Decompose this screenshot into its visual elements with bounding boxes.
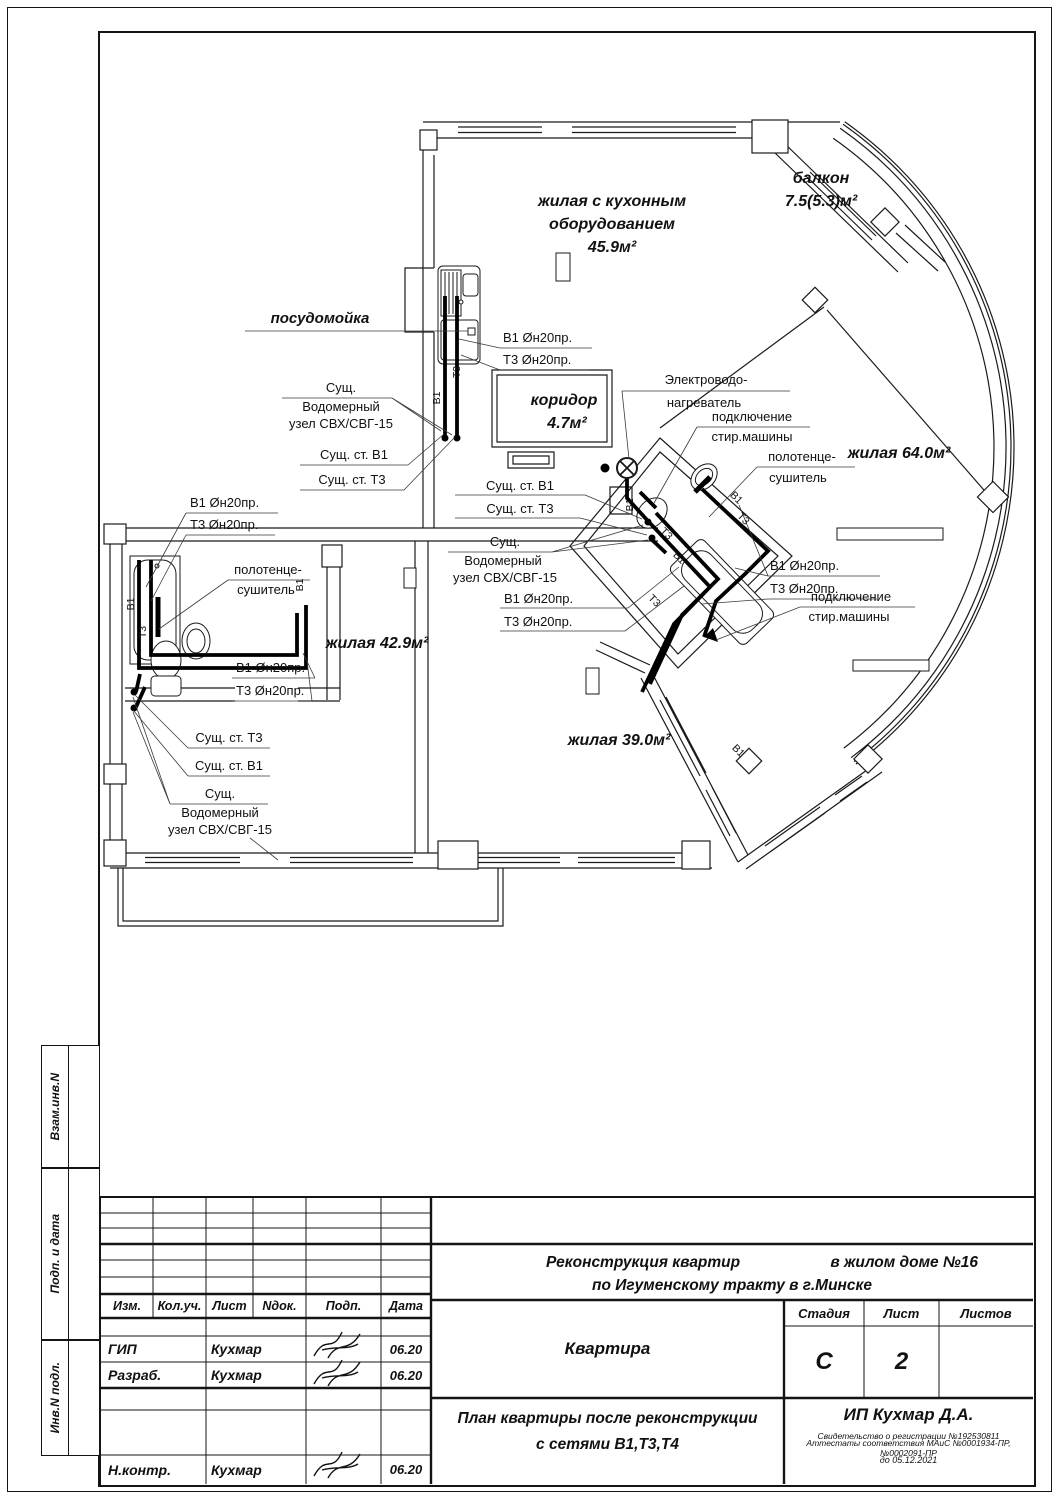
podp-data-label: Подп. и дата	[48, 1214, 62, 1293]
sheets-value	[939, 1326, 1033, 1398]
label-washer-right-1: подключение	[811, 589, 891, 604]
label-exist-riser-t3-top: Сущ. ст. Т3	[318, 472, 385, 487]
tag-t3: Т3	[451, 366, 463, 378]
label-towel-right-1: полотенце-	[768, 449, 836, 464]
sheets-label: Листов	[939, 1300, 1033, 1326]
row-gip-role: ГИП	[108, 1336, 204, 1362]
label-dishwasher: посудомойка	[271, 310, 370, 327]
project-name-left: Реконструкция квартир	[546, 1254, 740, 1272]
room-label-corridor-area: 4.7м²	[546, 415, 587, 432]
room-label-corridor: коридор	[531, 392, 598, 409]
sanitary-fixtures	[130, 266, 776, 696]
drawing-title-1: План квартиры после реконструкции	[431, 1404, 784, 1434]
riser-dots	[131, 435, 656, 712]
tag-b1: В1	[727, 489, 745, 507]
side-cell-inv: Инв.N подл.	[41, 1340, 100, 1456]
side-cell-podp: Подп. и дата	[41, 1168, 100, 1340]
label-exist-riser-b1-bottom: Сущ. ст. В1	[195, 758, 263, 773]
row-gip-name: Кухмар	[211, 1336, 304, 1362]
room-label-kitchen-1: жилая с кухонным	[537, 193, 686, 210]
room-label-64: жилая 64.0м²	[847, 445, 951, 462]
col-data: Дата	[381, 1294, 431, 1318]
drawing-sheet: Взам.инв.N Подп. и дата Инв.N подл.	[0, 0, 1060, 1500]
project-name-row2: по Игуменскому тракту в г.Минске	[431, 1274, 1033, 1298]
vzam-label: Взам.инв.N	[48, 1073, 62, 1141]
label-heater-1: Электроводо-	[665, 372, 748, 387]
row-razrab-name: Кухмар	[211, 1362, 304, 1388]
label-pipe-t3-top: Т3 Øн20пр.	[503, 352, 571, 367]
label-exist-node-mid-2: Водомерный	[464, 553, 542, 568]
label-exist-node-mid-3: узел СВХ/СВГ-15	[453, 570, 557, 585]
tag-t3: Т3	[137, 626, 149, 638]
project-name-right: в жилом доме №16	[830, 1254, 978, 1272]
label-washer-top-1: подключение	[712, 409, 792, 424]
row-nkontr-date: 06.20	[381, 1455, 431, 1484]
sheet-label: Лист	[864, 1300, 939, 1326]
room-label-kitchen-area: 45.9м²	[587, 239, 637, 256]
label-pipe-t3-leftbottom: Т3 Øн20пр.	[236, 683, 304, 698]
label-exist-node-bottom-3: узел СВХ/СВГ-15	[168, 822, 272, 837]
floor-plan: жилая с кухонным оборудованием 45.9м² ба…	[100, 33, 1034, 1193]
room-label-balcony: балкон	[793, 170, 850, 187]
heater-symbol	[601, 458, 638, 478]
col-list: Лист	[206, 1294, 253, 1318]
label-exist-node-bottom-1: Сущ.	[205, 786, 235, 801]
row-razrab-role: Разраб.	[108, 1362, 204, 1388]
side-cell-label: Подп. и дата	[42, 1169, 69, 1339]
label-pipe-t3-mid: Т3 Øн20пр.	[504, 614, 572, 629]
label-exist-node-top-2: Водомерный	[302, 399, 380, 414]
label-pipe-t3-left: Т3 Øн20пр.	[190, 517, 258, 532]
col-izm: Изм.	[101, 1294, 153, 1318]
label-exist-riser-t3-mid: Сущ. ст. Т3	[486, 501, 553, 516]
tag-b1: В1	[624, 498, 636, 511]
object-name: Квартира	[431, 1300, 784, 1398]
label-pipe-b1-mid: В1 Øн20пр.	[504, 591, 573, 606]
project-name-row1: Реконструкция квартир в жилом доме №16	[431, 1250, 1033, 1276]
row-nkontr-name: Кухмар	[211, 1455, 304, 1484]
company-cert-3: до 05.12.2021	[784, 1454, 1033, 1465]
label-washer-right-2: стир.машины	[809, 609, 890, 624]
label-exist-riser-b1-mid: Сущ. ст. В1	[486, 478, 554, 493]
label-heater-2: нагреватель	[667, 395, 742, 410]
label-pipe-b1-right: В1 Øн20пр.	[770, 558, 839, 573]
stage-value: С	[784, 1326, 864, 1398]
label-pipe-b1-top: В1 Øн20пр.	[503, 330, 572, 345]
row-nkontr-role: Н.контр.	[108, 1455, 204, 1484]
label-towel-right-2: сушитель	[769, 470, 827, 485]
label-pipe-b1-leftbottom: В1 Øн20пр.	[236, 660, 305, 675]
inv-podl-label: Инв.N подл.	[48, 1362, 62, 1433]
col-ndok: Nдок.	[253, 1294, 306, 1318]
signature-scribble	[308, 1356, 380, 1390]
stage-label: Стадия	[784, 1300, 864, 1326]
label-exist-node-top-1: Сущ.	[326, 380, 356, 395]
drawing-title-2: с сетями В1,Т3,Т4	[431, 1432, 784, 1458]
label-towel-left-1: полотенце-	[234, 562, 302, 577]
side-cell-label: Инв.N подл.	[42, 1341, 69, 1455]
company-cert-2: Аттестаты соответствия МАиС №0001934-ПР,…	[784, 1442, 1033, 1453]
row-razrab-date: 06.20	[381, 1362, 431, 1388]
signature-scribble	[308, 1448, 380, 1482]
label-exist-node-top-3: узел СВХ/СВГ-15	[289, 416, 393, 431]
tag-t3: Т3	[646, 592, 663, 609]
title-block: Изм. Кол.уч. Лист Nдок. Подп. Дата ГИП К…	[99, 1196, 1036, 1487]
label-exist-node-bottom-2: Водомерный	[181, 805, 259, 820]
tag-b1: В1	[294, 578, 306, 591]
tag-b1: В1	[125, 597, 137, 610]
tag-t3: Т3	[735, 510, 752, 527]
side-cell-empty	[69, 1341, 99, 1455]
room-label-balcony-area: 7.5(5.3)м²	[785, 193, 858, 210]
label-exist-node-mid-1: Сущ.	[490, 534, 520, 549]
col-podp: Подп.	[306, 1294, 381, 1318]
room-label-429: жилая 42.9м²	[325, 635, 429, 652]
room-label-390: жилая 39.0м²	[567, 732, 671, 749]
label-exist-riser-b1-top: Сущ. ст. В1	[320, 447, 388, 462]
label-towel-left-2: сушитель	[237, 582, 295, 597]
side-cell-label: Взам.инв.N	[42, 1046, 69, 1167]
room-label-kitchen-2: оборудованием	[549, 216, 675, 233]
col-kol: Кол.уч.	[153, 1294, 206, 1318]
label-exist-riser-t3-bottom: Сущ. ст. Т3	[195, 730, 262, 745]
side-cell-vzam: Взам.инв.N	[41, 1045, 100, 1168]
side-cell-empty	[69, 1046, 99, 1167]
label-washer-top-2: стир.машины	[712, 429, 793, 444]
label-pipe-b1-left: В1 Øн20пр.	[190, 495, 259, 510]
tag-b1: В1	[431, 391, 443, 404]
side-cell-empty	[69, 1169, 99, 1339]
row-gip-date: 06.20	[381, 1336, 431, 1362]
sheet-value: 2	[864, 1326, 939, 1398]
company-name: ИП Кухмар Д.А.	[784, 1402, 1033, 1428]
